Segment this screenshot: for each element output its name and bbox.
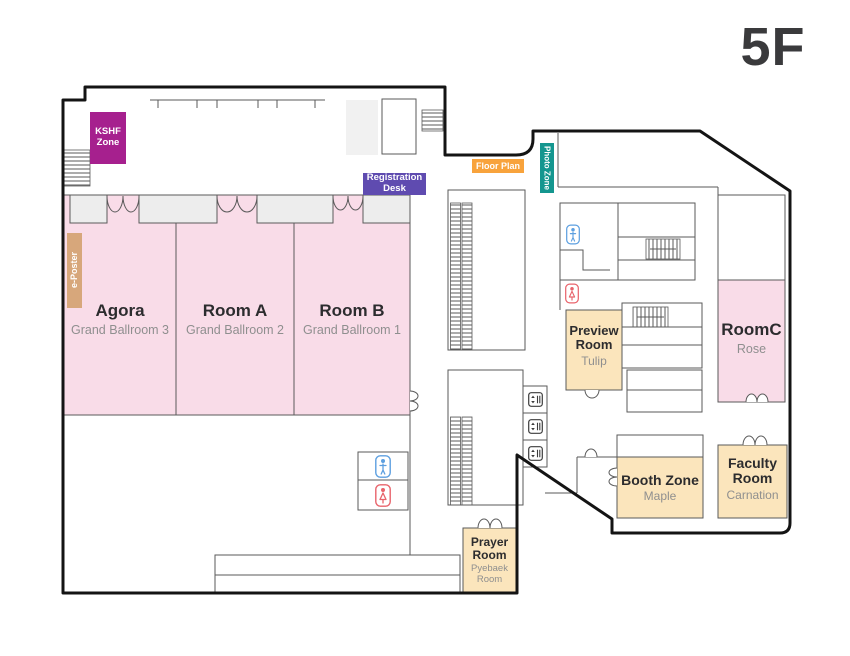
- room-subtitle: Grand Ballroom 3: [66, 323, 174, 337]
- room-subtitle: Tulip: [564, 355, 624, 369]
- room-name: RoomC: [718, 321, 785, 340]
- room-b-label: Room B Grand Ballroom 1: [296, 302, 408, 337]
- room-subtitle: Grand Ballroom 2: [178, 323, 292, 337]
- booth-zone-top-door-arc: [585, 449, 597, 457]
- room-subtitle: Maple: [615, 490, 705, 504]
- room-name: Room B: [296, 302, 408, 321]
- agora-label: Agora Grand Ballroom 3: [66, 302, 174, 337]
- preview-room-door-arc: [585, 390, 599, 398]
- booth-zone-label: Booth Zone Maple: [615, 473, 705, 504]
- room-name: Room A: [178, 302, 292, 321]
- room-name: Agora: [66, 302, 174, 321]
- female-restroom-icon: [375, 484, 391, 507]
- escalator-hatch: [462, 417, 472, 505]
- e-poster-label: e-Poster: [69, 252, 79, 288]
- prayer-room-door-arc: [478, 519, 502, 528]
- elevator-icon: [528, 419, 543, 434]
- stairs-hatch-left: [64, 150, 90, 186]
- top-white-room: [382, 99, 416, 154]
- kshf-zone-badge: KSHF Zone: [90, 112, 126, 164]
- floor-title: 5F: [733, 16, 813, 78]
- room-c-label: RoomC Rose: [718, 321, 785, 356]
- stairs-hatch-top: [422, 110, 443, 131]
- photo-zone-label: Photo Zone: [542, 146, 551, 190]
- kshf-zone-label: KSHF Zone: [90, 127, 126, 149]
- preview-room-label: Preview Room Tulip: [564, 324, 624, 368]
- escalator-hatch: [451, 203, 461, 350]
- male-restroom-icon: [566, 224, 580, 245]
- lobby-tables: [215, 555, 460, 593]
- photo-zone-badge: Photo Zone: [540, 143, 554, 193]
- e-poster-badge: e-Poster: [67, 233, 82, 308]
- wing-storage-rows: [627, 370, 702, 412]
- male-restroom-icon: [375, 455, 391, 478]
- female-restroom-icon: [565, 283, 579, 304]
- floor-plan-canvas: 5F KSHF Zone Registration Desk Floor Pla…: [0, 0, 850, 656]
- booth-zone-anteroom: [617, 435, 703, 457]
- room-name: Prayer Room: [461, 536, 518, 562]
- room-name: Faculty Room: [716, 456, 789, 487]
- floor-plan-badge: Floor Plan: [472, 159, 524, 173]
- registration-desk-label: Registration Desk: [363, 173, 426, 195]
- booth-zone-walls: [545, 457, 617, 493]
- room-name: Booth Zone: [615, 473, 705, 488]
- elevator-icon: [528, 446, 543, 461]
- floor-plan-label: Floor Plan: [476, 161, 520, 171]
- right-wing-top-walls: [558, 133, 718, 195]
- room-subtitle: Grand Ballroom 1: [296, 323, 408, 337]
- room-subtitle: Rose: [718, 342, 785, 356]
- room-subtitle: Pyebaek Room: [461, 564, 518, 586]
- top-partition-ticks: [150, 100, 325, 108]
- escalator-hatch: [451, 417, 461, 505]
- prayer-room-label: Prayer Room Pyebaek Room: [461, 536, 518, 586]
- room-subtitle: Carnation: [716, 489, 789, 503]
- room-above-roomc: [718, 195, 785, 280]
- elevator-icon: [528, 392, 543, 407]
- room-name: Preview Room: [564, 324, 624, 353]
- ballroom-right-door-arc: [410, 391, 418, 411]
- registration-desk-badge: Registration Desk: [363, 173, 426, 195]
- faculty-room-label: Faculty Room Carnation: [716, 456, 789, 503]
- room-a-label: Room A Grand Ballroom 2: [178, 302, 292, 337]
- escalator-hatch: [462, 203, 472, 350]
- top-grey-room: [346, 100, 378, 155]
- faculty-room-door-arc: [743, 436, 767, 445]
